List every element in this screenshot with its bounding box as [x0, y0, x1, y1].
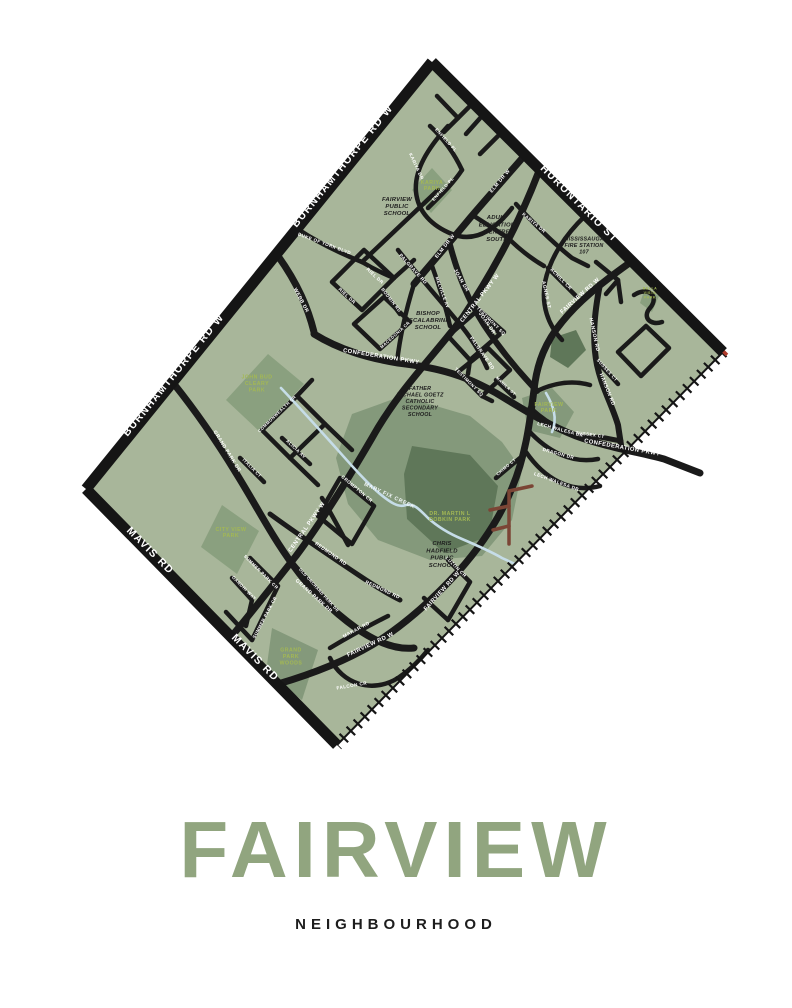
- map-container: BURNHAMTHORPE RD WBURNHAMTHORPE RD WHURO…: [0, 0, 792, 772]
- park-label: GRANDPARKWOODS: [280, 648, 303, 667]
- park-label: BELLAVISTAPARK: [643, 287, 657, 300]
- poster-subtitle: NEIGHBOURHOOD: [0, 916, 792, 933]
- park-label: KARIYAPARK: [421, 180, 443, 192]
- poster: BURNHAMTHORPE RD WBURNHAMTHORPE RD WHURO…: [0, 0, 792, 1008]
- park-label: DR. MARTIN LDOBKIN PARK: [429, 511, 471, 523]
- poster-title: FAIRVIEW: [0, 810, 792, 890]
- neighbourhood-map: BURNHAMTHORPE RD WBURNHAMTHORPE RD WHURO…: [0, 0, 792, 772]
- school-label: FAIRVIEWPUBLICSCHOOL: [382, 197, 412, 217]
- road-segment: [618, 280, 621, 302]
- title-block: FAIRVIEW NEIGHBOURHOOD: [0, 810, 792, 933]
